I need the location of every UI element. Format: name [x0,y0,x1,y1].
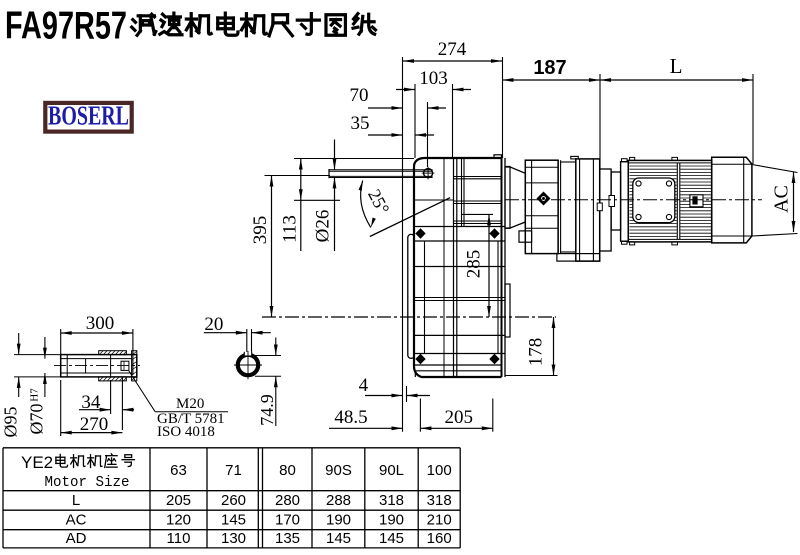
svg-text:300: 300 [86,313,115,334]
svg-text:205: 205 [444,407,473,428]
svg-text:74.9: 74.9 [257,394,277,426]
svg-text:70: 70 [350,85,369,106]
svg-text:160: 160 [427,530,452,547]
svg-text:Ø70: Ø70 [27,404,47,435]
svg-text:130: 130 [221,530,246,547]
svg-text:H7: H7 [29,388,41,402]
svg-text:4: 4 [359,375,369,396]
svg-text:318: 318 [379,492,404,509]
svg-text:318: 318 [427,492,452,509]
svg-text:110: 110 [167,530,191,547]
svg-text:90S: 90S [325,462,352,479]
svg-text:145: 145 [221,512,246,529]
svg-text:100: 100 [427,462,452,479]
svg-text:190: 190 [326,512,351,529]
svg-text:L: L [72,492,80,509]
svg-text:FA97R57: FA97R57 [5,5,127,48]
svg-text:145: 145 [326,530,351,547]
svg-text:AD: AD [66,530,87,547]
svg-text:187: 187 [533,57,566,79]
svg-text:63: 63 [170,462,187,479]
svg-text:35: 35 [351,113,370,134]
svg-text:BOSERL: BOSERL [48,101,129,131]
svg-text:YE2: YE2 [21,453,53,472]
svg-text:120: 120 [166,512,191,529]
svg-text:80: 80 [279,462,296,479]
svg-text:260: 260 [221,492,246,509]
svg-text:AC: AC [66,512,87,529]
svg-text:71: 71 [225,462,242,479]
svg-text:274: 274 [438,39,467,60]
svg-text:M20: M20 [176,396,204,412]
svg-text:48.5: 48.5 [334,407,367,428]
svg-text:285: 285 [464,250,485,279]
svg-text:Motor Size: Motor Size [45,474,130,491]
svg-text:L: L [670,54,683,78]
svg-text:Ø26: Ø26 [313,210,334,243]
svg-text:113: 113 [280,215,301,243]
svg-text:ISO 4018: ISO 4018 [157,424,215,440]
svg-text:210: 210 [427,512,452,529]
svg-text:270: 270 [80,414,109,435]
svg-text:190: 190 [379,512,404,529]
svg-text:288: 288 [326,492,351,509]
svg-text:178: 178 [526,338,547,367]
svg-text:170: 170 [275,512,300,529]
svg-text:280: 280 [275,492,300,509]
svg-text:395: 395 [250,216,271,245]
svg-text:135: 135 [275,530,300,547]
svg-text:90L: 90L [379,462,404,479]
svg-text:20: 20 [204,314,223,335]
svg-text:145: 145 [379,530,404,547]
svg-text:Ø95: Ø95 [1,407,21,438]
svg-text:AC: AC [771,185,793,213]
svg-text:205: 205 [166,492,191,509]
svg-text:103: 103 [419,68,448,89]
